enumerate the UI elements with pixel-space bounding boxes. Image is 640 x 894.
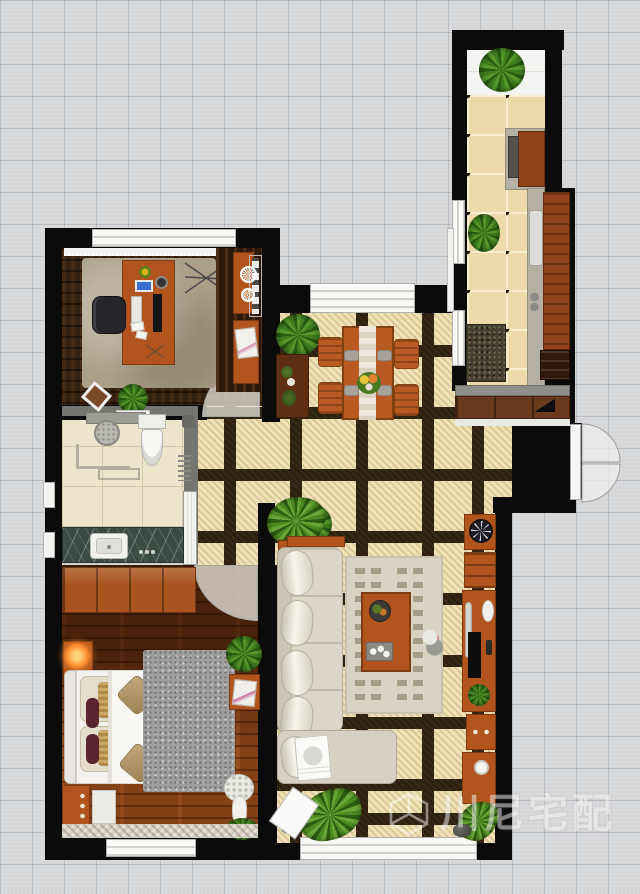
study-scissors [146, 340, 164, 362]
bedroom-left-wall [45, 556, 62, 848]
dining-window [310, 283, 415, 313]
watermark-cube-logo-icon [386, 791, 432, 837]
wardrobe [62, 567, 196, 613]
tv-remote [486, 640, 492, 655]
bedroom-rug [143, 650, 235, 792]
kitchen-right-wall-upper [545, 30, 562, 188]
bed-headboard [64, 670, 76, 784]
dining-chair-1 [318, 337, 343, 367]
kitchen-dark-cabinet [540, 350, 570, 380]
fruit-plate [369, 600, 391, 622]
upper-cabinet [464, 552, 496, 588]
study-bookshelf [249, 255, 262, 317]
sofa-back-table [287, 536, 345, 547]
kitchen-doormat [466, 324, 506, 382]
bedroom-plant [226, 636, 262, 672]
console-succulent-2 [282, 390, 296, 406]
kitchen-faucet [530, 292, 539, 312]
study-window [92, 229, 236, 247]
shoe-cabinet-base [455, 419, 570, 426]
watermark: 川尼宅配 [386, 786, 616, 842]
serving-tray [366, 642, 393, 661]
kitchen-plant [468, 214, 500, 252]
clock-medallion [469, 519, 493, 543]
white-bowl [474, 760, 489, 775]
toilet-tank [138, 414, 166, 429]
kitchen-wood-counter [543, 192, 570, 350]
study-keyboard [131, 296, 142, 323]
console-flowers [287, 378, 295, 386]
dining-plant [276, 314, 320, 356]
shower-head [94, 420, 120, 446]
bed-pillow-maroon-2 [86, 734, 99, 764]
chaise-book [294, 735, 332, 782]
watermark-text: 川尼宅配 [440, 794, 616, 834]
dresser [62, 785, 90, 827]
study-magazine [234, 327, 258, 359]
entry-door-leaf [570, 424, 581, 500]
entry-bottom-wall [493, 497, 576, 513]
bath-wall-fixture [182, 415, 195, 428]
lower-cabinet [466, 714, 496, 750]
kitchen-window-sill [447, 228, 454, 312]
study-monitor [153, 294, 162, 332]
study-tablet [135, 280, 153, 292]
study-office-chair [92, 296, 126, 334]
shoe-cabinet-notch [535, 399, 555, 412]
bedroom-magazine [232, 679, 258, 707]
vanity-drain [107, 545, 111, 549]
bathroom-exterior-window-2 [43, 532, 55, 558]
kitchen-window-2 [452, 310, 465, 366]
shoe-cabinet-top [455, 385, 570, 396]
tv [468, 632, 481, 678]
bathroom-exterior-window-1 [43, 482, 55, 508]
flower-centerpiece [357, 372, 381, 394]
kitchen-sink [529, 210, 543, 266]
study-left-wall [45, 228, 62, 420]
sofa-pillow-3 [279, 649, 314, 697]
floor-plan-canvas: 川尼宅配 [0, 0, 640, 894]
dining-chair-2 [318, 382, 343, 414]
lace-doily-2 [241, 288, 255, 302]
dining-chair-3 [394, 339, 419, 369]
console-succulent-1 [281, 366, 293, 378]
bed-pillow-maroon-1 [86, 698, 99, 728]
bedroom-bottom-window [106, 839, 196, 857]
place-setting-1 [344, 350, 359, 361]
cooktop-cabinet [518, 131, 545, 187]
place-setting-2 [377, 350, 392, 361]
towel-rack [178, 455, 191, 481]
stove [508, 136, 519, 178]
lace-doily-1 [240, 266, 257, 283]
bedside-lamp [64, 643, 90, 669]
carpet-runner [62, 824, 258, 838]
study-desk-lamp [155, 276, 168, 289]
shower-shelf [86, 412, 146, 424]
bathroom-sliding-door [183, 491, 197, 565]
oval-dish [482, 600, 494, 622]
vanity-items [138, 549, 156, 556]
dining-wall-left [278, 285, 311, 313]
console-table [276, 354, 309, 418]
balcony-palm-plant [479, 48, 525, 92]
bed-bench [92, 790, 116, 824]
bath-tray [98, 468, 140, 480]
study-desk-flower [139, 266, 151, 278]
dining-chair-4 [394, 384, 419, 416]
tv-cabinet-plant [468, 684, 490, 706]
entry-door-swing-arcs [581, 423, 623, 503]
